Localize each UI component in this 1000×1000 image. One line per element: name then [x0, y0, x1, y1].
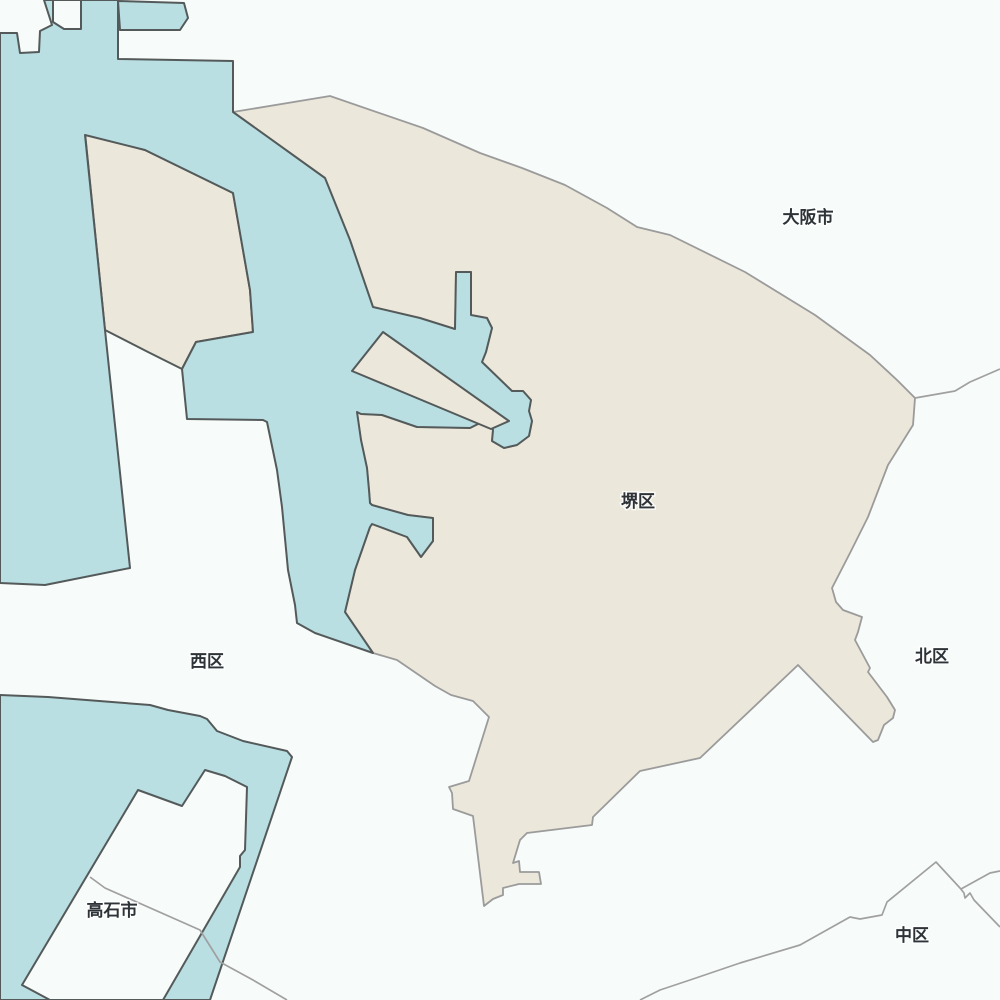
map-canvas: 大阪市堺区西区北区高石市中区 — [0, 0, 1000, 1000]
region-label-osaka-shi: 大阪市 — [783, 207, 834, 227]
water-basin-rect — [118, 1, 188, 30]
region-label-nishi-ku: 西区 — [190, 652, 224, 671]
region-label-kita-ku: 北区 — [915, 647, 949, 666]
region-label-sakai-ku: 堺区 — [621, 491, 655, 511]
north-inner-land-pocket — [53, 0, 81, 29]
region-label-takaishi-shi: 高石市 — [87, 900, 138, 920]
region-label-naka-ku: 中区 — [895, 925, 929, 945]
map-viewport: 大阪市堺区西区北区高石市中区 — [0, 0, 1000, 1000]
